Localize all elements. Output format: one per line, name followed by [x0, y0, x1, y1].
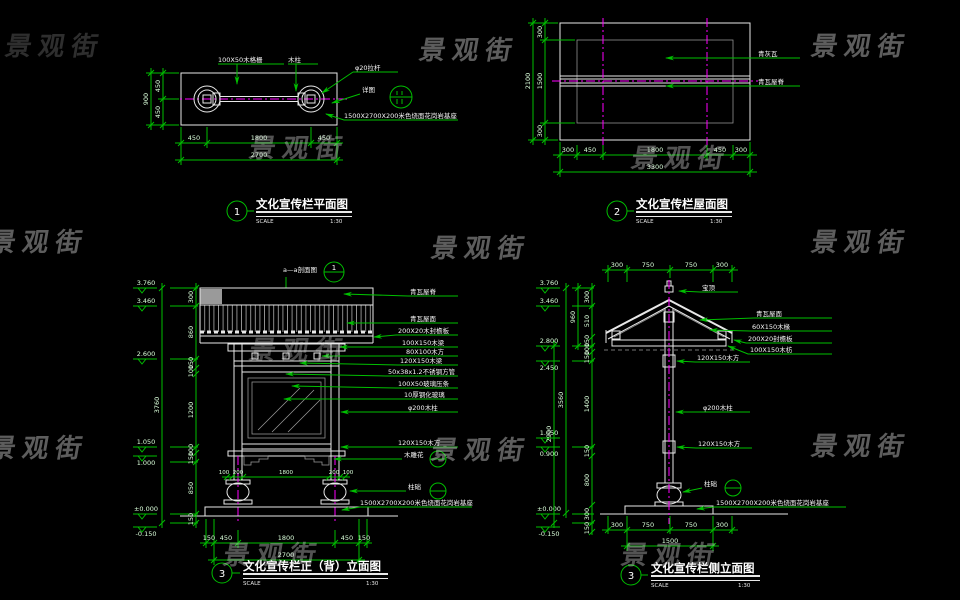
detail-bubble — [390, 86, 412, 108]
dim: 1800 — [647, 146, 664, 154]
svg-text:青瓦屋面: 青瓦屋面 — [756, 309, 783, 318]
dim: 450 — [584, 146, 596, 154]
svg-text:2700: 2700 — [278, 551, 295, 559]
svg-text:450: 450 — [341, 534, 353, 542]
dim: 450 — [188, 134, 200, 142]
view-number: 1 — [234, 207, 240, 218]
section-label: a—a剖面图 — [283, 265, 317, 274]
annotation: 详图 — [362, 85, 375, 94]
svg-text:510: 510 — [583, 315, 591, 327]
svg-text:1800: 1800 — [279, 470, 293, 476]
svg-text:100X150木梁: 100X150木梁 — [402, 338, 445, 347]
annotation: 1500X2700X200米色烧面花岗岩基座 — [344, 111, 457, 120]
svg-text:2.600: 2.600 — [137, 350, 156, 358]
view-number: 3 — [628, 571, 634, 582]
dim: 450 — [154, 106, 162, 118]
svg-text:1500: 1500 — [662, 537, 679, 545]
dim: 300 — [562, 146, 574, 154]
scale-label: SCALE — [651, 583, 669, 589]
view3-title: 3 文化宣传栏正（背）立面图 SCALE 1:30 — [212, 559, 388, 587]
svg-text:200X20封檐板: 200X20封檐板 — [748, 334, 793, 343]
svg-text:10厚钢化玻璃: 10厚钢化玻璃 — [404, 390, 445, 399]
dim: 450 — [154, 80, 162, 92]
annotation: 100X50木格栅 — [218, 55, 263, 64]
svg-text:300: 300 — [716, 261, 728, 269]
svg-text:300: 300 — [583, 508, 591, 520]
svg-text:宝顶: 宝顶 — [702, 283, 716, 292]
svg-text:3.460: 3.460 — [540, 297, 559, 305]
view4-side-elevation: 300 750 750 300 3.760 3.460 2.800 2.450 … — [536, 261, 846, 589]
dim: 300 — [536, 125, 544, 137]
svg-text:750: 750 — [685, 261, 697, 269]
svg-text:50x38x1.2不锈钢方管: 50x38x1.2不锈钢方管 — [388, 367, 456, 376]
section-bubble: 1 — [324, 262, 344, 282]
svg-text:3.760: 3.760 — [540, 279, 559, 287]
svg-text:青瓦屋面: 青瓦屋面 — [410, 314, 437, 323]
svg-text:450: 450 — [220, 534, 232, 542]
svg-text:800: 800 — [583, 474, 591, 486]
svg-text:300: 300 — [583, 291, 591, 303]
svg-text:1500X2700X200米色烧面花岗岩基座: 1500X2700X200米色烧面花岗岩基座 — [716, 498, 829, 507]
svg-text:3560: 3560 — [557, 392, 565, 409]
svg-text:750: 750 — [642, 521, 654, 529]
svg-text:200X20木封檐板: 200X20木封檐板 — [398, 326, 450, 335]
svg-text:80X100木方: 80X100木方 — [406, 347, 445, 356]
view2-title: 2 文化宣传栏屋面图 SCALE 1:30 — [607, 197, 732, 225]
scale-value: 1:30 — [330, 219, 343, 225]
detail-bubble — [725, 480, 741, 496]
dim: 450 — [714, 146, 726, 154]
svg-text:120X150木梁: 120X150木梁 — [400, 356, 443, 365]
annotation: φ20拉杆 — [355, 63, 381, 72]
annotation: 青瓦屋脊 — [758, 77, 785, 86]
svg-text:120X150木方: 120X150木方 — [697, 353, 740, 362]
dim: 300 — [735, 146, 747, 154]
svg-text:100: 100 — [219, 470, 230, 476]
svg-text:750: 750 — [685, 521, 697, 529]
scale-value: 1:30 — [710, 219, 723, 225]
view-title: 文化宣传栏平面图 — [256, 197, 348, 211]
dim: 450 — [318, 134, 330, 142]
svg-text:750: 750 — [642, 261, 654, 269]
svg-text:±0.000: ±0.000 — [134, 505, 158, 513]
view3-front-elevation: a—a剖面图 1 — [133, 262, 473, 587]
view-title: 文化宣传栏侧立面图 — [651, 561, 755, 575]
scale-label: SCALE — [636, 219, 654, 225]
svg-text:φ200木柱: φ200木柱 — [703, 403, 733, 412]
cad-drawing-canvas: 450 1800 450 2700 450 450 900 100X50木格栅 … — [0, 0, 960, 600]
svg-text:200: 200 — [233, 470, 244, 476]
svg-text:100X150木枋: 100X150木枋 — [750, 345, 793, 354]
svg-text:300: 300 — [187, 291, 195, 303]
svg-text:1800: 1800 — [278, 534, 295, 542]
view2-roof-plan: 300 1500 300 2100 300 450 1800 450 300 3… — [524, 18, 800, 225]
dim-total: 2700 — [251, 151, 268, 159]
scale-label: SCALE — [256, 219, 274, 225]
dim: 1500 — [536, 73, 544, 90]
svg-text:3.760: 3.760 — [137, 279, 156, 287]
svg-text:1: 1 — [332, 264, 336, 272]
cad-linework: 450 1800 450 2700 450 450 900 100X50木格栅 … — [0, 0, 960, 600]
svg-text:3760: 3760 — [153, 397, 161, 414]
dim-total: 900 — [142, 93, 150, 105]
svg-text:100X50玻璃压条: 100X50玻璃压条 — [398, 379, 450, 388]
svg-text:100: 100 — [187, 365, 195, 377]
svg-text:960: 960 — [569, 311, 577, 323]
svg-text:150: 150 — [583, 445, 591, 457]
scale-label: SCALE — [243, 581, 261, 587]
svg-text:120X150木方: 120X150木方 — [698, 439, 741, 448]
svg-text:200: 200 — [329, 470, 340, 476]
svg-text:木雕花: 木雕花 — [404, 450, 424, 459]
dim-total: 2100 — [524, 73, 532, 90]
svg-text:300: 300 — [611, 261, 623, 269]
dim: 1800 — [251, 134, 268, 142]
svg-text:青瓦屋脊: 青瓦屋脊 — [410, 287, 437, 296]
dim-total: 3300 — [647, 163, 664, 171]
svg-text:1200: 1200 — [187, 402, 195, 419]
svg-text:-0.150: -0.150 — [539, 530, 560, 538]
dim: 300 — [536, 26, 544, 38]
svg-text:100: 100 — [343, 470, 354, 476]
svg-text:1400: 1400 — [583, 396, 591, 413]
svg-text:150: 150 — [187, 452, 195, 464]
view1-title: 1 文化宣传栏平面图 SCALE 1:30 — [227, 197, 352, 225]
svg-text:-0.150: -0.150 — [136, 530, 157, 538]
svg-text:150: 150 — [583, 351, 591, 363]
annotation: 青灰瓦 — [758, 49, 778, 58]
scale-value: 1:30 — [366, 581, 379, 587]
detail-bubble — [430, 483, 446, 499]
svg-text:150: 150 — [358, 534, 370, 542]
svg-text:150: 150 — [203, 534, 215, 542]
svg-text:3.460: 3.460 — [137, 297, 156, 305]
svg-text:1500X2700X200米色烧面花岗岩基座: 1500X2700X200米色烧面花岗岩基座 — [360, 498, 473, 507]
svg-text:150: 150 — [187, 513, 195, 525]
svg-text:300: 300 — [716, 521, 728, 529]
svg-text:120X150木方: 120X150木方 — [398, 438, 441, 447]
view4-title: 3 文化宣传栏侧立面图 SCALE 1:30 — [621, 561, 760, 589]
svg-text:850: 850 — [187, 482, 195, 494]
svg-text:柱础: 柱础 — [704, 479, 718, 488]
view-title: 文化宣传栏正（背）立面图 — [243, 559, 381, 573]
annotation: 木柱 — [288, 55, 302, 64]
view-title: 文化宣传栏屋面图 — [636, 197, 728, 211]
svg-text:φ200木柱: φ200木柱 — [408, 403, 438, 412]
view-number: 2 — [614, 207, 620, 218]
svg-text:1.050: 1.050 — [137, 438, 156, 446]
scale-value: 1:30 — [738, 583, 751, 589]
svg-text:1.000: 1.000 — [137, 459, 156, 467]
detail-bubble — [430, 451, 446, 467]
svg-text:300: 300 — [611, 521, 623, 529]
svg-text:150: 150 — [583, 522, 591, 534]
svg-text:860: 860 — [187, 326, 195, 338]
svg-text:柱础: 柱础 — [408, 482, 422, 491]
svg-text:0.900: 0.900 — [540, 450, 559, 458]
svg-text:2.450: 2.450 — [540, 364, 559, 372]
svg-text:2900: 2900 — [545, 426, 553, 443]
svg-text:60X150木椽: 60X150木椽 — [752, 322, 791, 331]
view-number: 3 — [219, 569, 225, 580]
view1-plan: 450 1800 450 2700 450 450 900 100X50木格栅 … — [142, 55, 458, 225]
svg-text:±0.000: ±0.000 — [537, 505, 561, 513]
